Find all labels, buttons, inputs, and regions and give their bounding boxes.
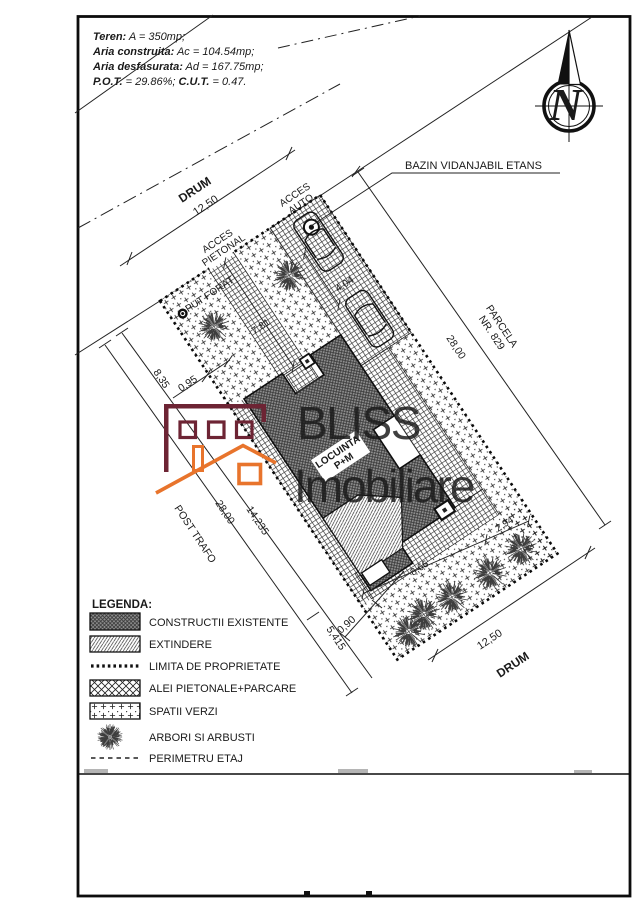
svg-text:Aria construita: Ac = 104.54mp: Aria construita: Ac = 104.54mp;: [92, 46, 254, 58]
svg-text:BAZIN VIDANJABIL ETANS: BAZIN VIDANJABIL ETANS: [405, 160, 542, 172]
svg-text:Imobiliare: Imobiliare: [294, 460, 474, 512]
svg-text:P.O.T. = 29.86%; C.U.T. = 0.47: P.O.T. = 29.86%; C.U.T. = 0.47.: [93, 76, 247, 88]
svg-text:BLISS: BLISS: [297, 397, 420, 449]
svg-text:Aria desfasurata: Ad = 167.75m: Aria desfasurata: Ad = 167.75mp;: [92, 61, 264, 73]
svg-text:N: N: [548, 79, 584, 130]
svg-text:LEGENDA:: LEGENDA:: [92, 599, 152, 611]
svg-text:CONSTRUCTII EXISTENTE: CONSTRUCTII EXISTENTE: [149, 617, 288, 629]
svg-text:ALEI PIETONALE+PARCARE: ALEI PIETONALE+PARCARE: [149, 683, 296, 695]
svg-text:PERIMETRU ETAJ: PERIMETRU ETAJ: [149, 753, 243, 765]
svg-text:SPATII VERZI: SPATII VERZI: [149, 706, 218, 718]
svg-text:ARBORI SI ARBUSTI: ARBORI SI ARBUSTI: [149, 732, 255, 744]
svg-text:EXTINDERE: EXTINDERE: [149, 639, 212, 651]
svg-text:Teren: A = 350mp;: Teren: A = 350mp;: [93, 31, 185, 43]
svg-text:LIMITA DE PROPRIETATE: LIMITA DE PROPRIETATE: [149, 661, 280, 673]
